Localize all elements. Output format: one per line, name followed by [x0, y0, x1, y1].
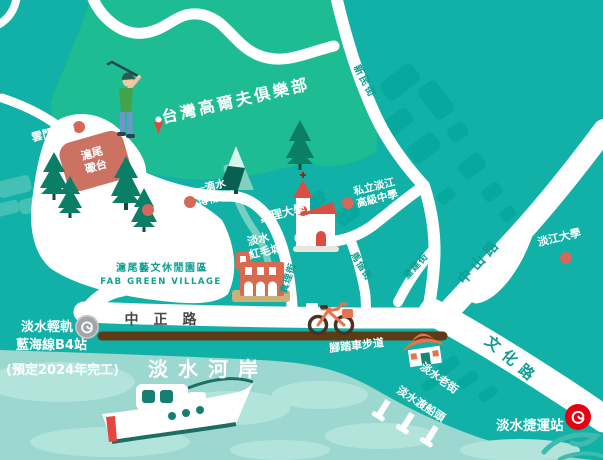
label-lrt-line3: (預定2024年完工): [6, 362, 119, 378]
poi-dot-tamkang-hs: [342, 197, 354, 209]
poi-dot-peace-park: [142, 204, 154, 216]
poi-dot-drop-museum: [184, 196, 196, 208]
label-fab-zh: 滬尾藝文休閒園區: [116, 261, 208, 274]
label-riverside-title: 淡水河岸: [148, 357, 268, 381]
label-lrt-line2: 藍海線B4站: [16, 337, 87, 353]
lrt-station-icon: [75, 315, 99, 339]
label-mrt-station: 淡水捷運站: [496, 417, 564, 434]
label-zhongzheng-road: 中正路: [125, 311, 212, 328]
label-fab-en: FAB GREEN VILLAGE: [100, 277, 222, 287]
mrt-station-icon: [565, 404, 591, 430]
label-lrt-line1: 淡水輕軌: [21, 319, 73, 335]
tamsui-illustrated-map: 台灣高爾夫俱樂部 雲門劇場 滬尾 礮台 和平 公園 一滴水 博物館 真理大學 淡…: [0, 0, 603, 460]
map-canvas: 台灣高爾夫俱樂部 雲門劇場 滬尾 礮台 和平 公園 一滴水 博物館 真理大學 淡…: [0, 0, 603, 460]
poi-dot-tamkang-univ: [560, 252, 572, 264]
